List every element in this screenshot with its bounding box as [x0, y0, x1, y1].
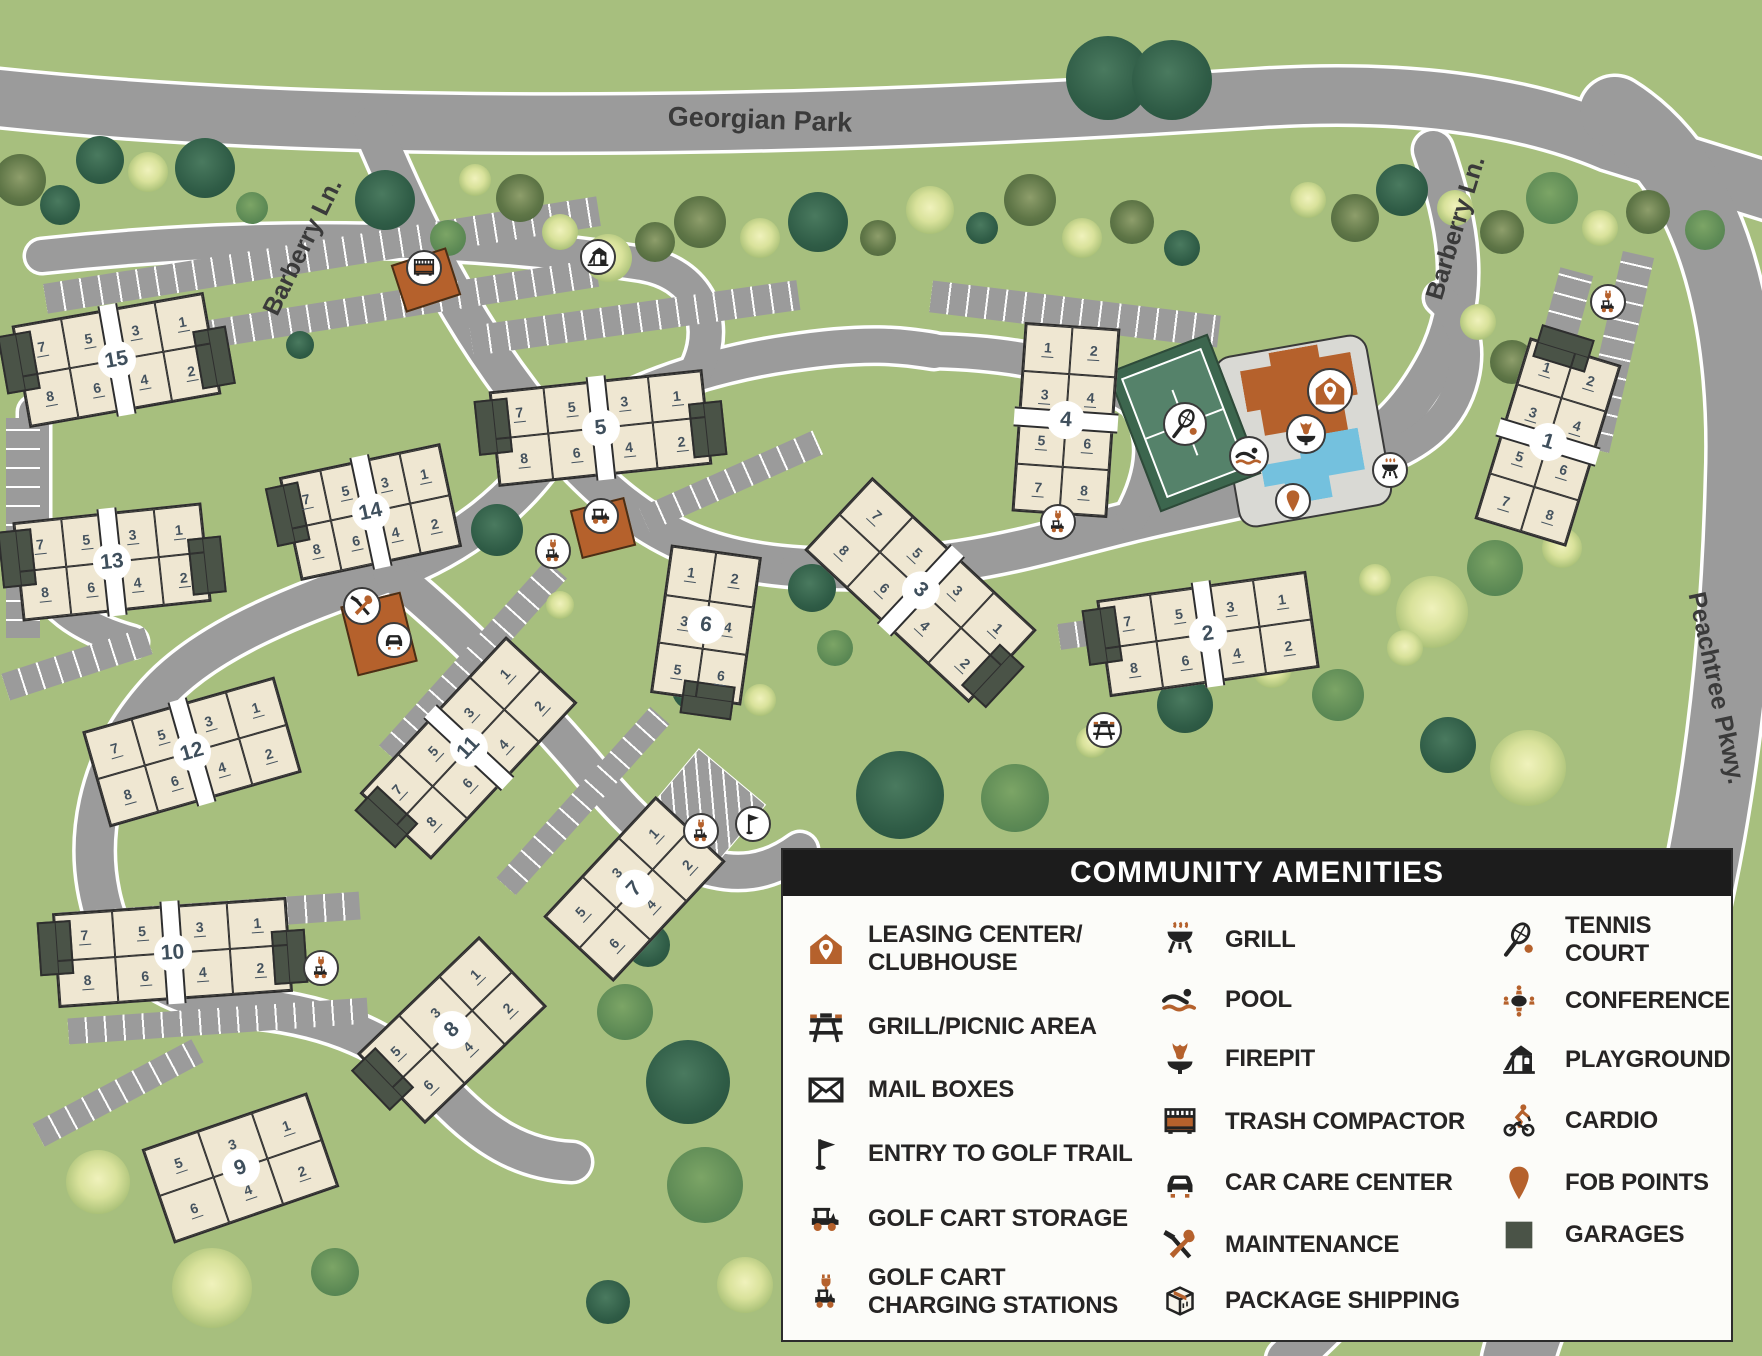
- unit-number: 8: [517, 450, 531, 469]
- unit-number: 6: [714, 666, 728, 685]
- unit-cell: 1: [154, 294, 210, 352]
- unit-number: 3: [458, 702, 479, 723]
- golf-cart-charging-icon: [688, 818, 714, 844]
- unit-number: 1: [1041, 339, 1054, 358]
- unit-number: 8: [1127, 658, 1141, 677]
- marker-grill-icon: [1372, 452, 1408, 488]
- unit-number: 3: [193, 918, 206, 937]
- unit-number: 2: [954, 653, 975, 674]
- tree: [717, 1257, 773, 1313]
- tennis-icon: [1168, 407, 1202, 441]
- golf-cart-charging-icon: [540, 538, 566, 564]
- unit-number: 4: [196, 963, 209, 982]
- legend-item-label: ENTRY TO GOLF TRAIL: [868, 1140, 1133, 1168]
- legend-item-label: GOLF CART CHARGING STATIONS: [868, 1264, 1118, 1320]
- golf-cart-charging-icon: [1045, 509, 1071, 535]
- golf-cart-icon: [804, 1197, 848, 1241]
- unit-number: 1: [684, 564, 698, 583]
- marker-golf-cart-charging-icon: [303, 950, 339, 986]
- unit-number: 6: [84, 579, 98, 598]
- unit-number: 4: [1084, 389, 1097, 408]
- pool-icon: [1234, 441, 1264, 471]
- unit-number: 7: [33, 536, 47, 555]
- leasing-icon: [1312, 373, 1348, 409]
- unit-number: 6: [89, 379, 104, 399]
- marker-pool-icon: [1229, 436, 1269, 476]
- unit-number: 1: [175, 313, 190, 333]
- unit-cell: 8: [495, 434, 552, 485]
- tree: [646, 1040, 730, 1124]
- tree: [1062, 218, 1102, 258]
- unit-number: 6: [604, 933, 625, 954]
- tree: [1376, 164, 1428, 216]
- unit-number: 7: [386, 779, 407, 800]
- tree: [981, 764, 1049, 832]
- legend-item-label: GARAGES: [1565, 1221, 1684, 1249]
- legend-item-label: PACKAGE SHIPPING: [1225, 1287, 1460, 1315]
- unit-number: 3: [128, 321, 143, 341]
- unit-number: 2: [427, 514, 442, 534]
- tree: [311, 1248, 359, 1296]
- tree: [546, 591, 574, 619]
- marker-golf-cart-charging-icon: [683, 813, 719, 849]
- unit-number: 3: [377, 473, 392, 493]
- unit-number: 5: [1172, 605, 1186, 624]
- unit-number: 4: [1568, 416, 1585, 437]
- unit-number: 4: [622, 439, 636, 458]
- tree: [175, 138, 235, 198]
- legend-item-label: TRASH COMPACTOR: [1225, 1108, 1465, 1136]
- unit-number: 2: [253, 959, 266, 978]
- fob-icon: [1497, 1161, 1541, 1205]
- unit-number: 1: [494, 664, 515, 685]
- golf-cart-charging-icon: [804, 1270, 848, 1314]
- marker-leasing-icon: [1307, 368, 1353, 414]
- garage-icon: [1497, 1213, 1541, 1257]
- cardio-icon: [1497, 1099, 1541, 1143]
- unit-cell: 8: [1105, 641, 1163, 695]
- unit-number: 2: [498, 998, 519, 1019]
- legend-item-label: GRILL: [1225, 926, 1296, 954]
- unit-number: 1: [172, 521, 186, 540]
- unit-number: 2: [727, 570, 741, 589]
- unit-number: 6: [1081, 435, 1094, 454]
- car-care-icon: [381, 627, 407, 653]
- marker-picnic-icon: [1086, 712, 1122, 748]
- picnic-icon: [804, 1005, 848, 1049]
- unit-cell: 7: [14, 519, 65, 572]
- marker-tennis-icon: [1163, 402, 1207, 446]
- unit-number: 7: [106, 739, 122, 760]
- tree: [1685, 210, 1725, 250]
- tree: [40, 185, 80, 225]
- tree: [542, 214, 578, 250]
- leasing-icon: [804, 927, 848, 971]
- unit-number: 7: [512, 404, 526, 423]
- unit-cell: 7: [1098, 595, 1156, 649]
- tree: [1331, 194, 1379, 242]
- unit-number: 6: [569, 444, 583, 463]
- unit-number: 2: [261, 745, 277, 766]
- unit-number: 2: [183, 362, 198, 382]
- unit-number: 1: [643, 824, 664, 845]
- tree: [1132, 40, 1212, 120]
- legend-item-label: MAINTENANCE: [1225, 1231, 1399, 1259]
- unit-number: 5: [1511, 447, 1528, 468]
- unit-number: 5: [564, 398, 578, 417]
- unit-number: 7: [34, 338, 49, 358]
- unit-number: 1: [986, 618, 1007, 639]
- unit-number: 6: [185, 1199, 202, 1220]
- unit-number: 5: [135, 922, 148, 941]
- unit-number: 2: [177, 569, 191, 588]
- grill-icon: [1377, 457, 1403, 483]
- marker-trash-compactor-icon: [406, 250, 442, 286]
- unit-number: 5: [670, 660, 684, 679]
- tree: [1359, 564, 1391, 596]
- tree: [355, 170, 415, 230]
- unit-number: 1: [465, 964, 486, 985]
- legend-item-label: PLAYGROUND: [1565, 1046, 1730, 1074]
- legend-item-label: FOB POINTS: [1565, 1169, 1709, 1197]
- unit-cell: 7: [13, 319, 69, 377]
- tree: [740, 218, 780, 258]
- legend-item-label: CARDIO: [1565, 1107, 1658, 1135]
- tree: [1420, 717, 1476, 773]
- unit-cell: 1: [1023, 324, 1072, 374]
- legend-item-label: MAIL BOXES: [868, 1076, 1014, 1104]
- unit-number: 3: [946, 581, 967, 602]
- unit-number: 5: [170, 1153, 187, 1174]
- tree: [667, 1147, 743, 1223]
- marker-playground-icon: [580, 239, 616, 275]
- unit-number: 5: [79, 531, 93, 550]
- unit-number: 4: [1230, 644, 1244, 663]
- legend-title: COMMUNITY AMENITIES: [783, 850, 1731, 896]
- unit-number: 5: [81, 330, 96, 350]
- unit-number: 8: [832, 540, 853, 561]
- conference-icon: [1497, 979, 1541, 1023]
- unit-number: 5: [906, 543, 927, 564]
- unit-cell: 2: [158, 552, 209, 605]
- maintenance-icon: [348, 592, 376, 620]
- unit-cell: 1: [648, 371, 705, 422]
- tree: [635, 222, 675, 262]
- pool-icon: [1158, 978, 1202, 1022]
- tree: [1460, 304, 1496, 340]
- unit-cell: 1: [1253, 573, 1311, 627]
- unit-number: 2: [1087, 343, 1100, 362]
- unit-number: 4: [913, 616, 934, 637]
- trash-compactor-icon: [1158, 1100, 1202, 1144]
- unit-number: 5: [385, 1041, 406, 1062]
- unit-number: 8: [81, 971, 94, 990]
- tennis-icon: [1497, 918, 1541, 962]
- unit-cell: 2: [709, 553, 759, 607]
- unit-cell: 5: [652, 643, 702, 697]
- golf-flag-icon: [804, 1132, 848, 1176]
- unit-number: 2: [1281, 637, 1295, 656]
- unit-cell: 2: [230, 944, 291, 993]
- grill-icon: [1158, 918, 1202, 962]
- unit-cell: 7: [54, 911, 115, 960]
- tree: [1467, 540, 1523, 596]
- unit-number: 5: [422, 741, 443, 762]
- unit-cell: 2: [1069, 327, 1118, 377]
- unit-cell: 6: [696, 649, 746, 703]
- legend-item-label: CONFERENCE: [1565, 987, 1730, 1015]
- unit-number: 3: [126, 526, 140, 545]
- unit-number: 4: [214, 758, 230, 779]
- unit-number: 3: [1223, 597, 1237, 616]
- unit-cell: 1: [226, 899, 287, 948]
- legend-item-label: TENNIS COURT: [1565, 912, 1731, 968]
- tree: [966, 212, 998, 244]
- playground-icon: [585, 244, 611, 270]
- tree: [586, 1280, 630, 1324]
- unit-number: 1: [250, 914, 263, 933]
- tree: [1582, 210, 1618, 246]
- unit-number: 8: [120, 785, 136, 806]
- unit-number: 6: [138, 967, 151, 986]
- unit-number: 3: [617, 393, 631, 412]
- unit-number: 2: [528, 696, 549, 717]
- unit-cell: 2: [163, 343, 219, 401]
- unit-number: 4: [493, 734, 514, 755]
- unit-number: 7: [865, 505, 886, 526]
- unit-cell: 1: [666, 547, 716, 601]
- marker-golf-cart-charging-icon: [535, 533, 571, 569]
- marker-golf-cart-charging-icon: [1040, 504, 1076, 540]
- tree: [856, 751, 944, 839]
- tree: [286, 331, 314, 359]
- unit-cell: 8: [22, 368, 78, 426]
- marker-fob-icon: [1275, 483, 1311, 519]
- tree: [597, 984, 653, 1040]
- unit-cell: 2: [1259, 620, 1317, 674]
- tree: [1164, 230, 1200, 266]
- playground-icon: [1497, 1038, 1541, 1082]
- tree: [172, 1248, 252, 1328]
- unit-number: 7: [1032, 479, 1045, 498]
- unit-number: 5: [154, 725, 170, 746]
- unit-number: 5: [570, 902, 591, 923]
- tree: [744, 684, 776, 716]
- tree: [236, 192, 268, 224]
- legend-item-label: CAR CARE CENTER: [1225, 1169, 1453, 1197]
- golf-flag-icon: [740, 811, 766, 837]
- unit-cell: 7: [490, 388, 547, 439]
- golf-cart-charging-icon: [308, 955, 334, 981]
- unit-number: 7: [1120, 612, 1134, 631]
- firepit-icon: [1158, 1037, 1202, 1081]
- tree: [860, 220, 896, 256]
- legend-panel: COMMUNITY AMENITIES LEASING CENTER/ CLUB…: [781, 848, 1733, 1342]
- tree: [66, 1150, 130, 1214]
- trash-compactor-icon: [411, 255, 437, 281]
- tree: [788, 192, 848, 252]
- tree: [906, 186, 954, 234]
- unit-number: 7: [1497, 492, 1514, 513]
- unit-number: 8: [1541, 505, 1558, 526]
- marker-golf-cart-icon: [583, 498, 619, 534]
- fob-icon: [1280, 488, 1306, 514]
- legend-item-label: FIREPIT: [1225, 1045, 1315, 1073]
- marker-golf-flag-icon: [735, 806, 771, 842]
- unit-number: 5: [1035, 432, 1048, 451]
- unit-number: 6: [348, 531, 363, 551]
- marker-golf-cart-charging-icon: [1590, 284, 1626, 320]
- unit-cell: 8: [57, 956, 118, 1005]
- maintenance-icon: [1158, 1223, 1202, 1267]
- tree: [1626, 190, 1670, 234]
- tree: [1490, 730, 1566, 806]
- unit-number: 2: [1582, 372, 1599, 393]
- tree: [1110, 200, 1154, 244]
- unit-number: 2: [677, 855, 698, 876]
- unit-number: 1: [669, 387, 683, 406]
- unit-number: 8: [42, 387, 57, 407]
- unit-number: 2: [674, 433, 688, 452]
- package-icon: [1158, 1279, 1202, 1323]
- unit-number: 1: [1275, 590, 1289, 609]
- tree: [459, 164, 491, 196]
- tree: [496, 174, 544, 222]
- building-13: 7531864213: [12, 502, 211, 621]
- tree: [674, 196, 726, 248]
- unit-number: 5: [337, 481, 352, 501]
- unit-cell: 8: [20, 567, 71, 620]
- building-10: 7531864210: [51, 896, 292, 1007]
- unit-cell: 1: [153, 505, 204, 558]
- building-4: 123456784: [1011, 322, 1120, 518]
- picnic-icon: [1091, 717, 1117, 743]
- golf-cart-icon: [588, 503, 614, 529]
- tree: [1480, 210, 1524, 254]
- tree: [128, 152, 168, 192]
- unit-number: 1: [277, 1116, 294, 1137]
- tree: [1290, 182, 1326, 218]
- unit-number: 4: [387, 523, 402, 543]
- unit-number: 3: [1038, 386, 1051, 405]
- firepit-icon: [1291, 419, 1321, 449]
- marker-firepit-icon: [1286, 414, 1326, 454]
- car-care-icon: [1158, 1161, 1202, 1205]
- legend-item-label: GOLF CART STORAGE: [868, 1205, 1128, 1233]
- golf-cart-charging-icon: [1595, 289, 1621, 315]
- unit-number: 8: [38, 584, 52, 603]
- unit-number: 8: [1077, 482, 1090, 501]
- mail-icon: [804, 1068, 848, 1112]
- unit-number: 7: [298, 490, 313, 510]
- tree: [1004, 174, 1056, 226]
- unit-number: 6: [457, 773, 478, 794]
- tree: [1312, 669, 1364, 721]
- unit-number: 1: [416, 464, 431, 484]
- unit-number: 6: [1555, 461, 1572, 482]
- unit-number: 1: [1538, 358, 1555, 379]
- marker-maintenance-icon: [343, 587, 381, 625]
- unit-number: 6: [1178, 651, 1192, 670]
- marker-car-care-icon: [376, 622, 412, 658]
- unit-number: 6: [418, 1075, 439, 1096]
- legend-item-label: GRILL/PICNIC AREA: [868, 1013, 1097, 1041]
- legend-item-label: POOL: [1225, 986, 1292, 1014]
- unit-number: 1: [248, 698, 264, 719]
- tree: [76, 136, 124, 184]
- unit-number: 8: [309, 539, 324, 559]
- unit-number: 4: [131, 574, 145, 593]
- tree: [1387, 630, 1423, 666]
- unit-cell: 2: [652, 417, 709, 468]
- unit-number: 6: [167, 772, 183, 793]
- tree: [471, 504, 523, 556]
- tree: [1526, 172, 1578, 224]
- unit-number: 7: [77, 926, 90, 945]
- community-site-map: COMMUNITY AMENITIES LEASING CENTER/ CLUB…: [0, 0, 1762, 1356]
- unit-number: 8: [421, 811, 442, 832]
- unit-number: 3: [1524, 403, 1541, 424]
- legend-item-label: LEASING CENTER/ CLUBHOUSE: [868, 921, 1082, 977]
- unit-number: 3: [201, 712, 217, 733]
- tree: [817, 630, 853, 666]
- unit-number: 4: [136, 371, 151, 391]
- unit-number: 6: [873, 578, 894, 599]
- unit-number: 2: [293, 1162, 310, 1183]
- road-label: Georgian Park: [667, 101, 853, 138]
